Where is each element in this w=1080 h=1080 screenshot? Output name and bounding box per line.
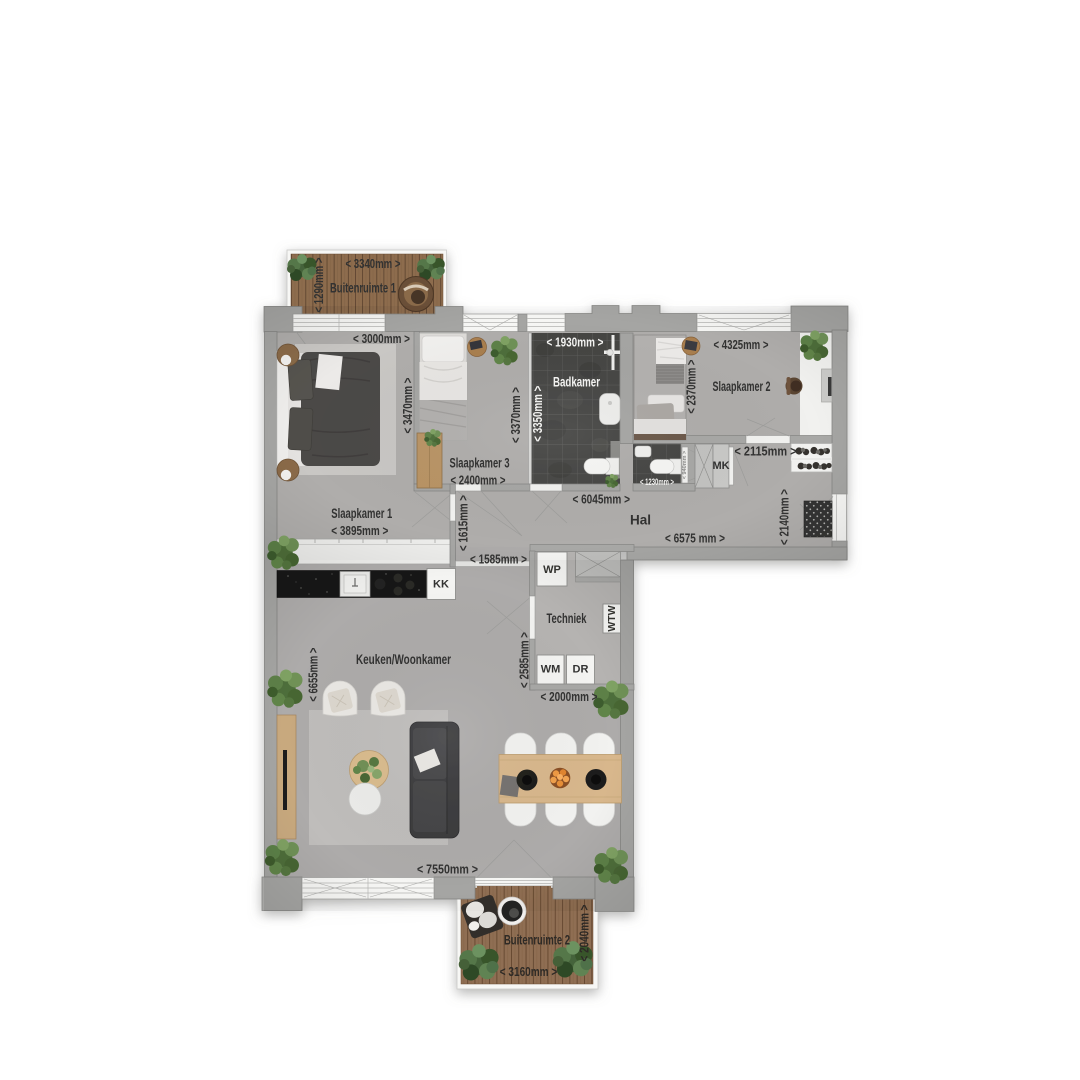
svg-text:< 4325mm >: < 4325mm > <box>714 337 769 352</box>
svg-text:< 1290mm >: < 1290mm > <box>311 257 326 312</box>
svg-text:< 2370mm >: < 2370mm > <box>684 359 699 413</box>
svg-text:< 940mm >: < 940mm > <box>682 451 688 479</box>
svg-text:< 2140mm >: < 2140mm > <box>777 489 792 545</box>
svg-text:Techniek: Techniek <box>547 611 587 626</box>
svg-text:< 2585mm >: < 2585mm > <box>517 632 532 688</box>
svg-text:< 2115mm >: < 2115mm > <box>735 444 797 459</box>
svg-text:< 2400mm >: < 2400mm > <box>451 473 506 488</box>
svg-text:Buitenruimte 2: Buitenruimte 2 <box>504 933 570 948</box>
svg-text:< 3470mm >: < 3470mm > <box>400 377 415 433</box>
svg-text:< 6045mm >: < 6045mm > <box>572 492 630 507</box>
svg-text:< 1930mm >: < 1930mm > <box>547 335 604 350</box>
svg-text:< 3370mm >: < 3370mm > <box>508 387 523 443</box>
svg-text:Hal: Hal <box>630 513 651 528</box>
svg-text:< 1615mm >: < 1615mm > <box>456 495 471 551</box>
svg-text:< 3000mm >: < 3000mm > <box>353 331 410 346</box>
svg-text:< 3350mm >: < 3350mm > <box>530 385 545 441</box>
svg-text:< 6575 mm >: < 6575 mm > <box>665 531 725 546</box>
svg-text:< 6655mm >: < 6655mm > <box>306 647 321 701</box>
svg-text:Slaapkamer 1: Slaapkamer 1 <box>331 506 392 521</box>
svg-text:< 7550mm >: < 7550mm > <box>417 862 478 877</box>
svg-text:Badkamer: Badkamer <box>553 375 601 390</box>
svg-text:< 2000mm >: < 2000mm > <box>541 689 598 704</box>
svg-text:Keuken/Woonkamer: Keuken/Woonkamer <box>356 652 452 667</box>
svg-text:< 1585mm >: < 1585mm > <box>470 552 527 567</box>
svg-text:< 3340mm >: < 3340mm > <box>346 256 401 271</box>
svg-text:MK: MK <box>712 460 729 472</box>
svg-text:< 2040mm >: < 2040mm > <box>577 904 592 961</box>
svg-text:< 1230mm >: < 1230mm > <box>640 477 674 487</box>
svg-text:Slaapkamer 2: Slaapkamer 2 <box>713 379 771 394</box>
svg-text:< 3160mm >: < 3160mm > <box>500 964 558 979</box>
svg-text:< 3895mm >: < 3895mm > <box>331 523 388 538</box>
svg-text:Buitenruimte 1: Buitenruimte 1 <box>330 281 396 296</box>
svg-text:Slaapkamer 3: Slaapkamer 3 <box>450 456 510 471</box>
